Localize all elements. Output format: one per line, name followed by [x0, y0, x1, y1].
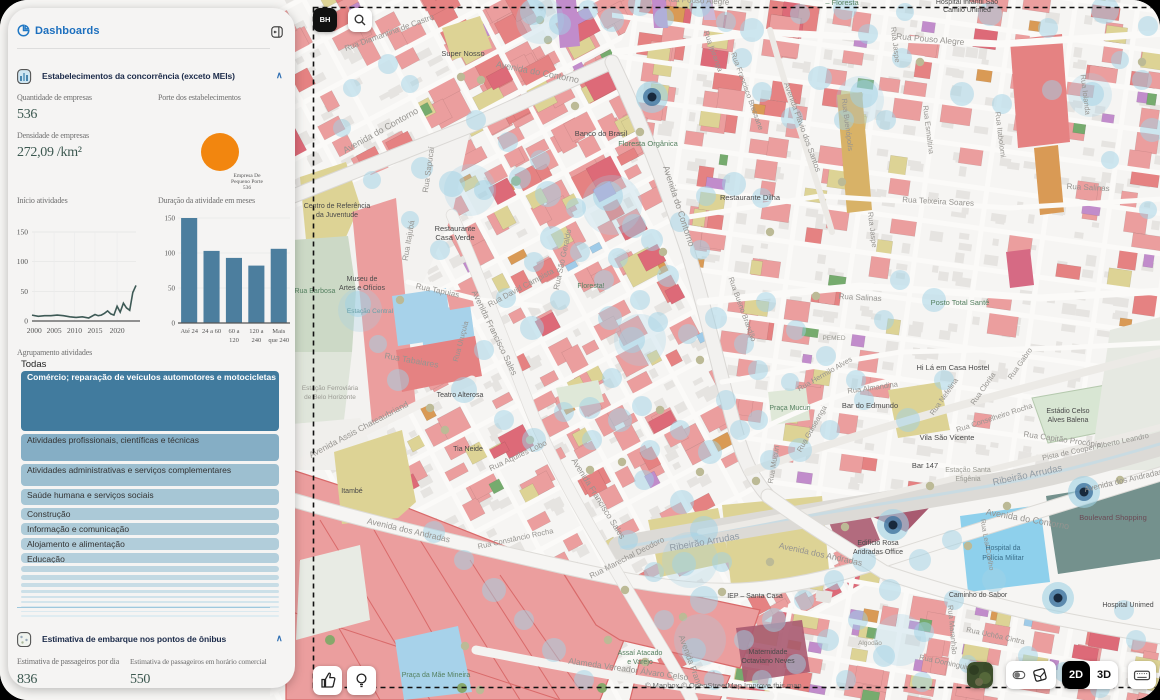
svg-text:que 240: que 240 — [268, 337, 289, 344]
svg-text:150: 150 — [165, 215, 176, 223]
svg-text:2015: 2015 — [88, 326, 103, 335]
svg-text:120 a: 120 a — [249, 328, 263, 335]
svg-text:240: 240 — [252, 337, 262, 344]
svg-text:100: 100 — [17, 257, 29, 266]
svg-text:0: 0 — [24, 317, 28, 326]
svg-text:2005: 2005 — [47, 326, 62, 335]
svg-text:2020: 2020 — [110, 326, 125, 335]
svg-text:100: 100 — [165, 250, 176, 258]
svg-text:24 a 60: 24 a 60 — [202, 328, 221, 335]
svg-text:2000: 2000 — [27, 326, 42, 335]
svg-text:50: 50 — [21, 287, 29, 296]
svg-text:Mais: Mais — [272, 328, 285, 335]
svg-text:Até 24: Até 24 — [180, 328, 198, 335]
svg-text:0: 0 — [172, 320, 176, 328]
svg-text:50: 50 — [168, 285, 176, 293]
svg-text:2010: 2010 — [67, 326, 82, 335]
svg-text:60 a: 60 a — [228, 328, 239, 335]
svg-text:150: 150 — [17, 228, 29, 237]
svg-text:120: 120 — [229, 337, 239, 344]
